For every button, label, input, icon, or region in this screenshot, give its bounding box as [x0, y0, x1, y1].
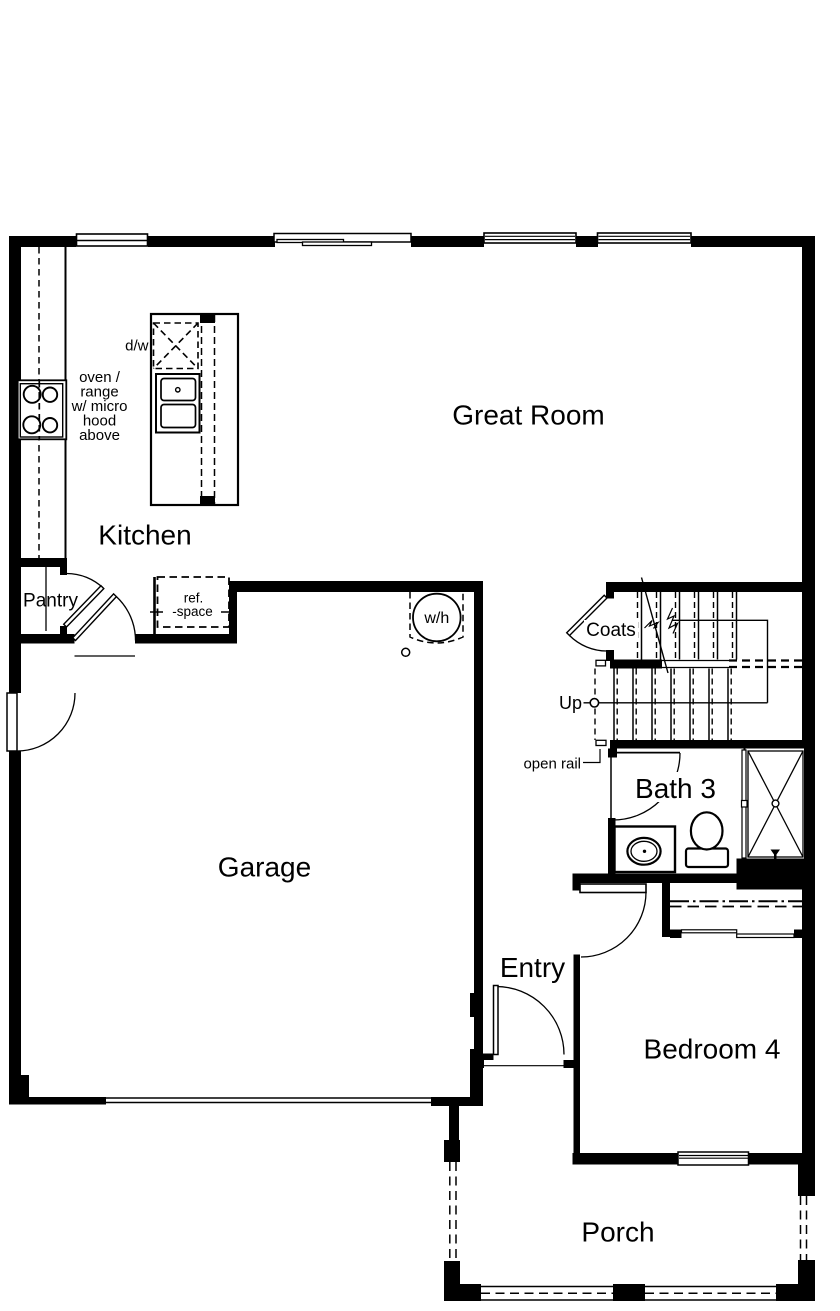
svg-text:Entry: Entry	[500, 952, 565, 983]
svg-text:Bedroom 4: Bedroom 4	[644, 1034, 781, 1065]
svg-text:Up: Up	[559, 693, 582, 713]
svg-text:above: above	[79, 427, 120, 444]
svg-text:w/h: w/h	[423, 610, 449, 627]
svg-text:Garage: Garage	[218, 852, 311, 883]
svg-text:Coats: Coats	[586, 620, 636, 641]
svg-text:Kitchen: Kitchen	[98, 520, 191, 551]
svg-text:Bath 3: Bath 3	[635, 773, 716, 804]
svg-text:Porch: Porch	[581, 1217, 654, 1248]
svg-text:-space: -space	[172, 604, 213, 619]
svg-text:Pantry: Pantry	[23, 591, 78, 612]
svg-text:d/w: d/w	[125, 338, 149, 355]
svg-text:open rail: open rail	[523, 756, 581, 773]
svg-text:Great Room: Great Room	[452, 400, 605, 431]
